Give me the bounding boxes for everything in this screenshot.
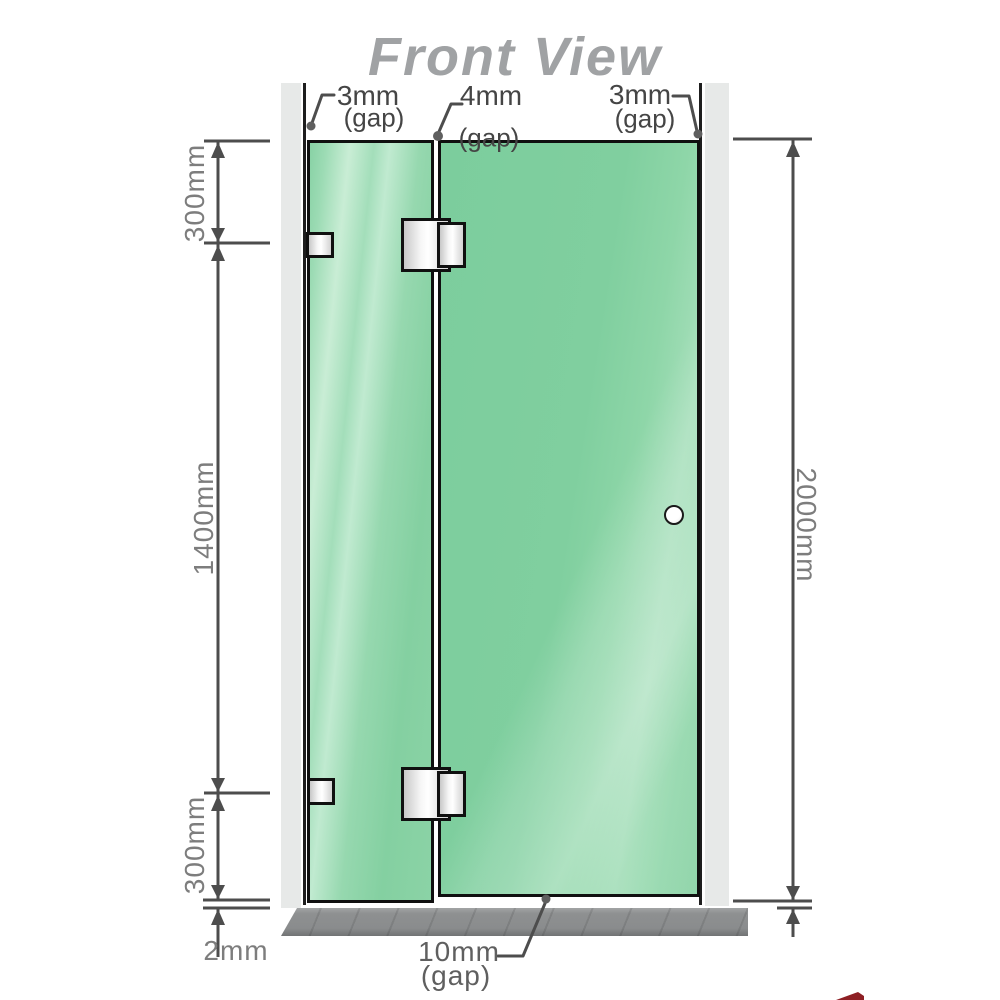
brand-mark-red-icon [0,0,1000,1000]
shower-screen-front-view-diagram: Front View [0,0,1000,1000]
